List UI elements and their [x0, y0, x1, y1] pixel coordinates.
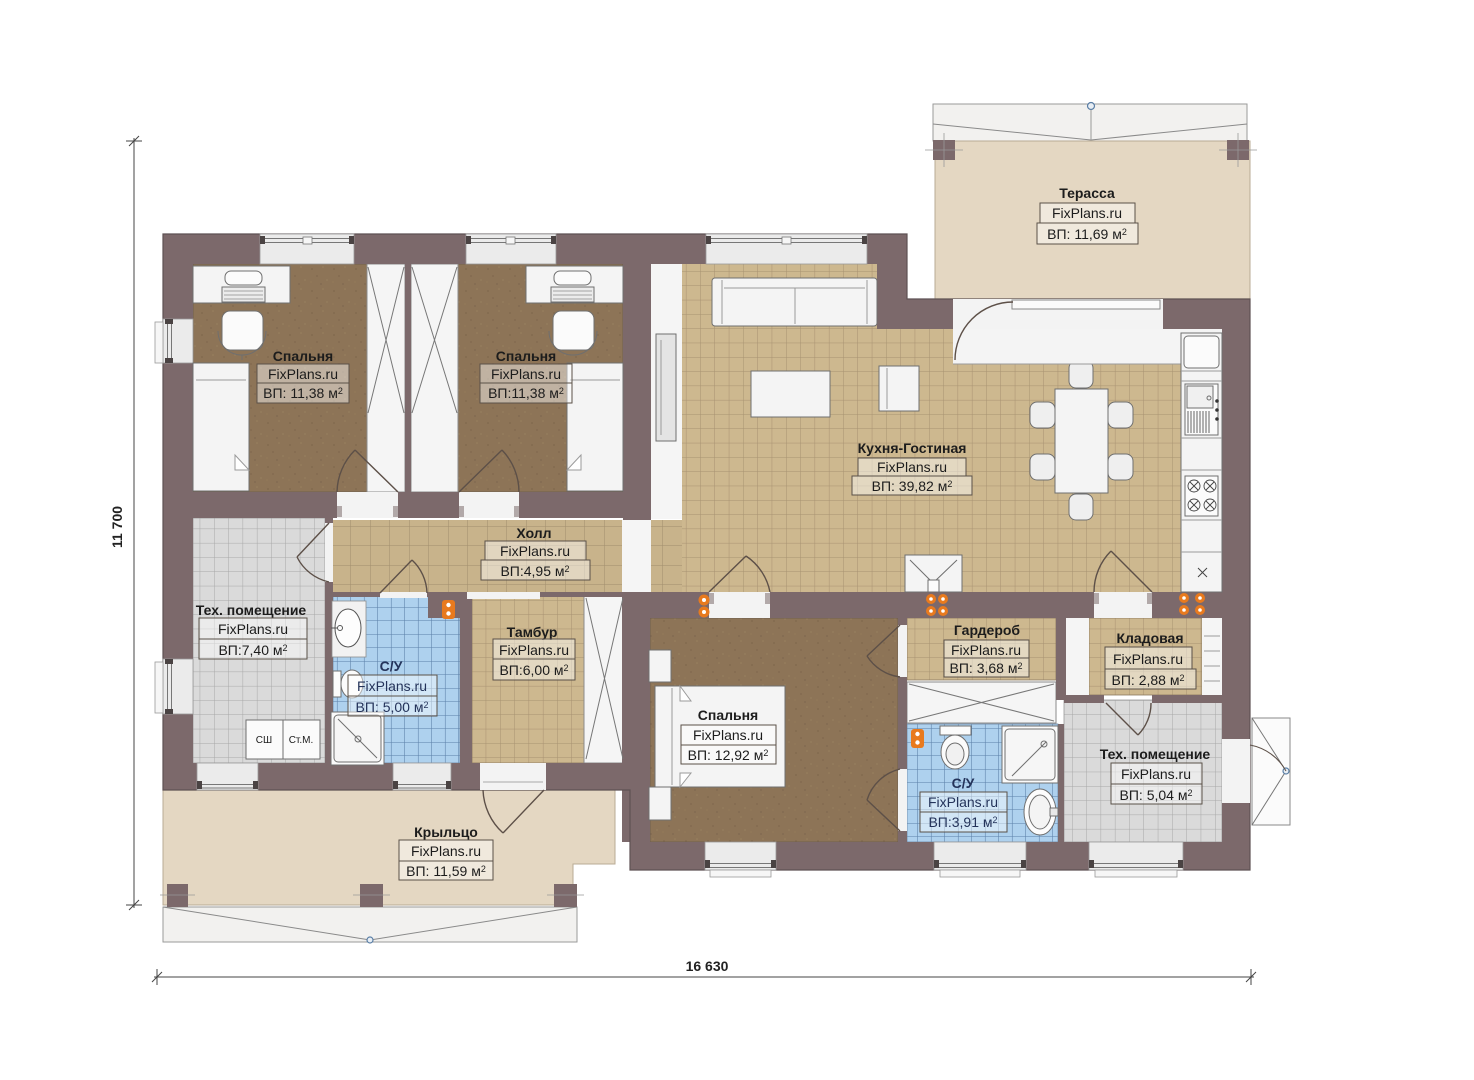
svg-text:Терасса: Терасса: [1059, 185, 1115, 201]
svg-text:FixPlans.ru: FixPlans.ru: [928, 794, 998, 810]
svg-text:FixPlans.ru: FixPlans.ru: [877, 459, 947, 475]
svg-text:ВП: 2,88 м2: ВП: 2,88 м2: [1112, 672, 1185, 688]
svg-text:FixPlans.ru: FixPlans.ru: [1113, 651, 1183, 667]
svg-text:ВП: 39,82 м2: ВП: 39,82 м2: [872, 478, 953, 494]
svg-text:FixPlans.ru: FixPlans.ru: [951, 642, 1021, 658]
svg-text:ВП: 5,04 м2: ВП: 5,04 м2: [1120, 787, 1193, 803]
svg-text:FixPlans.ru: FixPlans.ru: [491, 366, 561, 382]
svg-text:ВП:7,40 м2: ВП:7,40 м2: [218, 642, 287, 658]
svg-text:FixPlans.ru: FixPlans.ru: [1052, 205, 1122, 221]
svg-text:Тамбур: Тамбур: [507, 624, 558, 640]
svg-text:Кладовая: Кладовая: [1116, 630, 1183, 646]
svg-text:ВП:4,95 м2: ВП:4,95 м2: [500, 563, 569, 579]
svg-text:Спальня: Спальня: [496, 348, 556, 364]
svg-text:FixPlans.ru: FixPlans.ru: [357, 678, 427, 694]
svg-text:ВП:3,91 м2: ВП:3,91 м2: [928, 814, 997, 830]
svg-text:СШ: СШ: [256, 735, 272, 746]
svg-text:ВП: 3,68 м2: ВП: 3,68 м2: [950, 660, 1023, 676]
svg-text:FixPlans.ru: FixPlans.ru: [693, 727, 763, 743]
svg-text:Спальня: Спальня: [698, 707, 758, 723]
svg-text:Крыльцо: Крыльцо: [414, 824, 478, 840]
svg-text:FixPlans.ru: FixPlans.ru: [499, 642, 569, 658]
svg-text:Тех. помещение: Тех. помещение: [1100, 746, 1211, 762]
svg-text:Ст.М.: Ст.М.: [289, 735, 314, 746]
svg-text:16 630: 16 630: [686, 958, 729, 974]
svg-text:ВП:6,00 м2: ВП:6,00 м2: [499, 662, 568, 678]
svg-text:ВП: 5,00 м2: ВП: 5,00 м2: [356, 699, 429, 715]
svg-text:11 700: 11 700: [109, 506, 125, 548]
svg-text:Тех. помещение: Тех. помещение: [196, 602, 307, 618]
svg-text:ВП:11,38 м2: ВП:11,38 м2: [488, 385, 564, 401]
svg-text:ВП: 12,92 м2: ВП: 12,92 м2: [688, 747, 769, 763]
svg-text:Холл: Холл: [516, 525, 551, 541]
svg-text:С/У: С/У: [380, 658, 403, 674]
svg-text:FixPlans.ru: FixPlans.ru: [1121, 766, 1191, 782]
svg-text:FixPlans.ru: FixPlans.ru: [218, 621, 288, 637]
svg-text:ВП: 11,69 м2: ВП: 11,69 м2: [1047, 226, 1127, 242]
svg-text:С/У: С/У: [952, 775, 975, 791]
svg-text:FixPlans.ru: FixPlans.ru: [411, 843, 481, 859]
svg-text:ВП: 11,59 м2: ВП: 11,59 м2: [406, 863, 486, 879]
svg-text:Спальня: Спальня: [273, 348, 333, 364]
svg-text:FixPlans.ru: FixPlans.ru: [500, 543, 570, 559]
svg-text:Кухня-Гостиная: Кухня-Гостиная: [858, 440, 967, 456]
svg-text:ВП: 11,38 м2: ВП: 11,38 м2: [263, 385, 343, 401]
svg-text:Гардероб: Гардероб: [954, 622, 1021, 638]
svg-text:FixPlans.ru: FixPlans.ru: [268, 366, 338, 382]
